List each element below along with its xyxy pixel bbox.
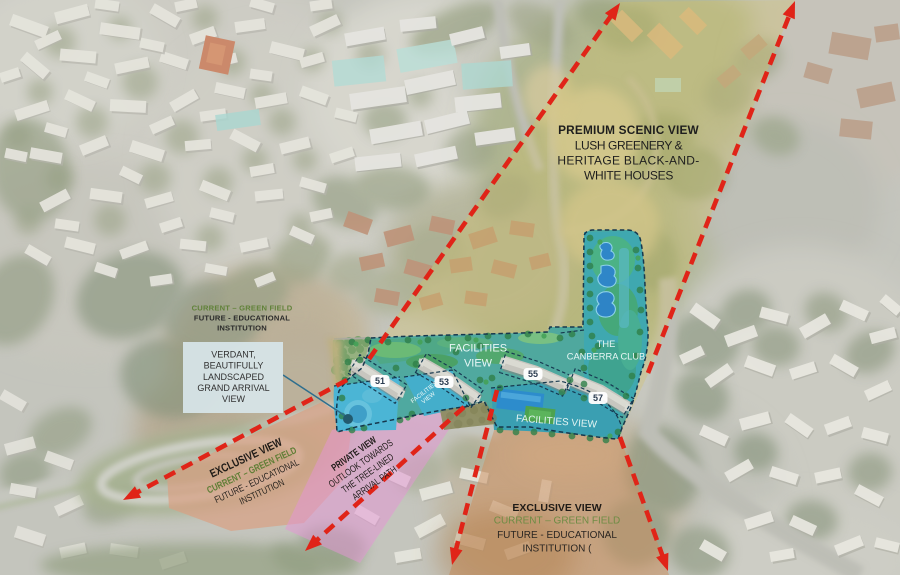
svg-text:VIEW: VIEW	[222, 394, 246, 404]
svg-text:PREMIUM SCENIC VIEW: PREMIUM SCENIC VIEW	[558, 123, 699, 137]
svg-text:GRAND ARRIVAL: GRAND ARRIVAL	[197, 383, 269, 393]
svg-text:EXCLUSIVE VIEW: EXCLUSIVE VIEW	[512, 502, 601, 514]
svg-text:FUTURE - EDUCATIONAL: FUTURE - EDUCATIONAL	[497, 530, 617, 541]
svg-text:LUSH GREENERY &: LUSH GREENERY &	[575, 139, 683, 153]
svg-text:INSTITUTION (: INSTITUTION (	[523, 544, 593, 555]
svg-text:INSTITUTION: INSTITUTION	[217, 324, 267, 333]
svg-text:51: 51	[375, 376, 385, 386]
svg-text:FUTURE - EDUCATIONAL: FUTURE - EDUCATIONAL	[194, 314, 290, 323]
svg-text:WHITE HOUSES: WHITE HOUSES	[584, 169, 673, 183]
svg-text:FACILITIES: FACILITIES	[449, 343, 507, 355]
svg-text:55: 55	[528, 369, 538, 379]
svg-text:CURRENT – GREEN FIELD: CURRENT – GREEN FIELD	[494, 515, 621, 526]
svg-text:CANBERRA CLUB: CANBERRA CLUB	[567, 352, 646, 362]
svg-text:VERDANT,: VERDANT,	[211, 350, 256, 360]
svg-text:LANDSCAPED: LANDSCAPED	[203, 372, 265, 382]
svg-text:THE: THE	[597, 339, 616, 349]
svg-text:57: 57	[593, 393, 603, 403]
svg-text:CURRENT – GREEN FIELD: CURRENT – GREEN FIELD	[192, 304, 293, 313]
svg-text:VIEW: VIEW	[464, 358, 493, 370]
svg-text:BEAUTIFULLY: BEAUTIFULLY	[204, 361, 264, 371]
svg-text:HERITAGE BLACK-AND-: HERITAGE BLACK-AND-	[557, 154, 699, 168]
svg-text:53: 53	[439, 377, 449, 387]
